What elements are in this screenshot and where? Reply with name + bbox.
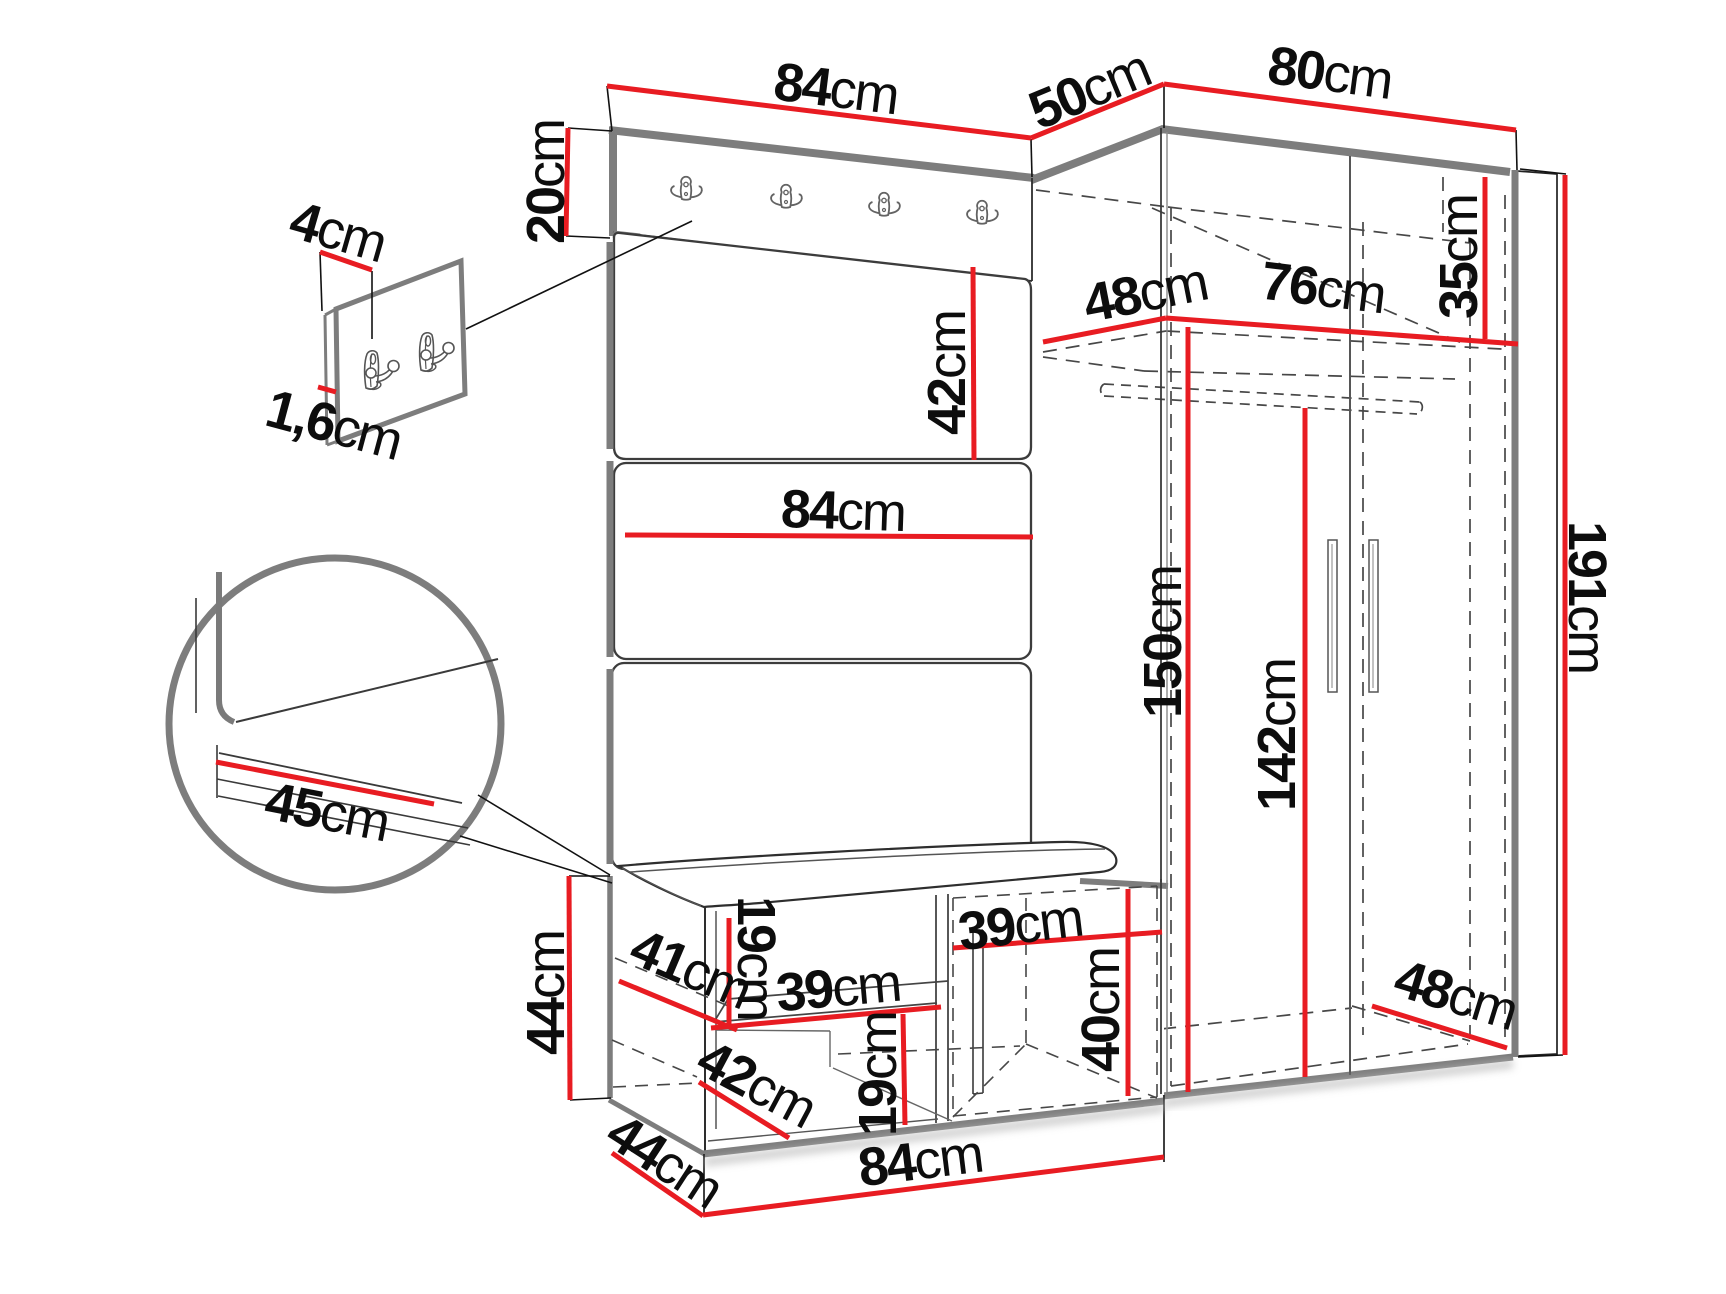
svg-text:84cm: 84cm [780, 479, 906, 543]
svg-text:44cm: 44cm [516, 931, 576, 1055]
svg-text:142cm: 142cm [1247, 659, 1307, 811]
svg-text:35cm: 35cm [1429, 195, 1489, 319]
svg-text:150cm: 150cm [1133, 566, 1193, 718]
svg-text:19cm: 19cm [848, 1012, 908, 1136]
svg-text:40cm: 40cm [1071, 948, 1131, 1072]
svg-text:42cm: 42cm [917, 311, 977, 435]
svg-text:191cm: 191cm [1557, 521, 1617, 673]
svg-text:20cm: 20cm [516, 120, 576, 244]
